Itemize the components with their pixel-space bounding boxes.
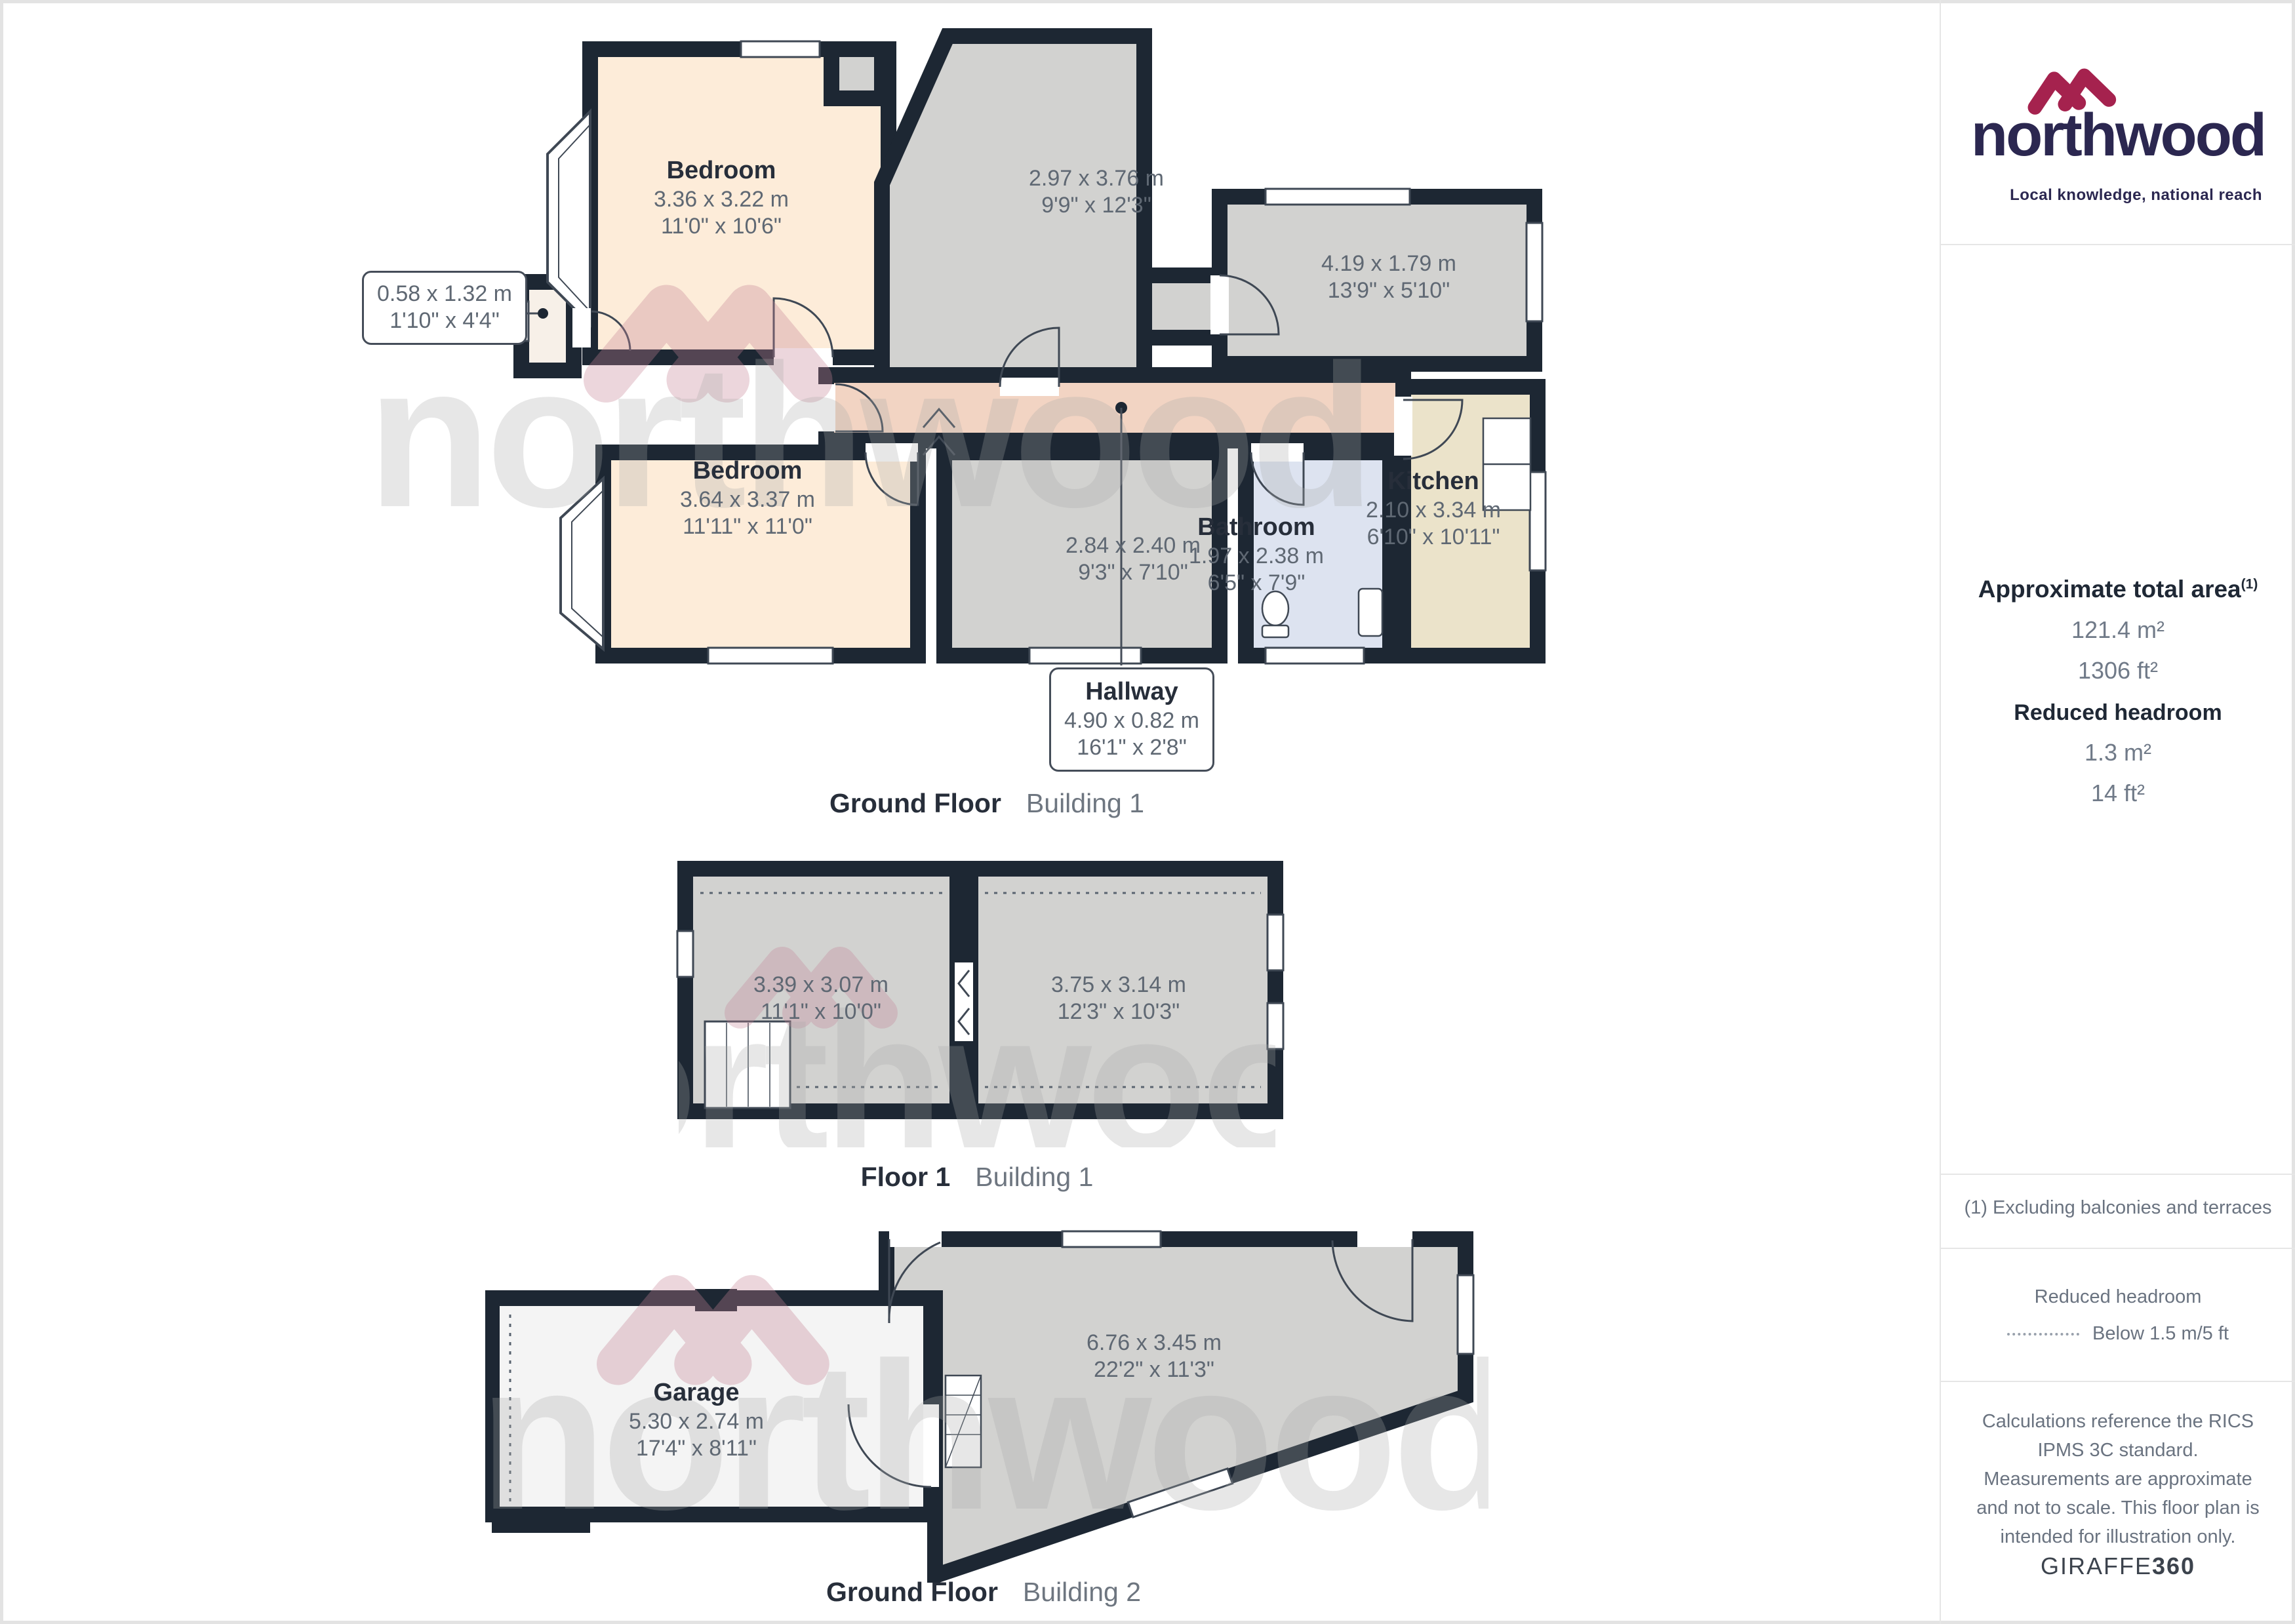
label-room375: 3.75 x 3.14 m 12'3" x 10'3" bbox=[1051, 972, 1186, 1026]
caption-floor: Ground Floor bbox=[826, 1577, 998, 1607]
bay-window-bedroom2 bbox=[561, 479, 603, 649]
wc-callout: 0.58 x 1.32 m 1'10" x 4'4" bbox=[362, 271, 527, 345]
total-area-title: Approximate total area(1) bbox=[1941, 576, 2295, 603]
window bbox=[708, 648, 833, 663]
total-area-metric: 121.4 m² bbox=[1941, 616, 2295, 644]
brand-tagline-wrap: Local knowledge, national reach bbox=[1967, 186, 2262, 205]
credit-normal: GIRAFFE bbox=[2041, 1553, 2152, 1579]
footnote-text: (1) Excluding balconies and terraces bbox=[1941, 1197, 2295, 1219]
legend-entry-text: Below 1.5 m/5 ft bbox=[2092, 1323, 2229, 1344]
ground-floor-building1-plan bbox=[511, 20, 1547, 665]
window bbox=[1266, 189, 1410, 205]
room-metric: 4.19 x 1.79 m bbox=[1321, 250, 1456, 277]
window bbox=[1530, 472, 1546, 570]
sink-icon bbox=[1359, 589, 1382, 636]
room-metric: 4.90 x 0.82 m bbox=[1064, 707, 1199, 734]
label-garage: Garage 5.30 x 2.74 m 17'4" x 8'11" bbox=[629, 1378, 764, 1463]
label-room339: 3.39 x 3.07 m 11'1" x 10'0" bbox=[753, 972, 888, 1026]
brand-logo: northwood bbox=[1941, 105, 2295, 165]
window bbox=[1267, 915, 1283, 970]
label-bathroom: Bathroom 1.97 x 2.38 m 6'5" x 7'9" bbox=[1189, 513, 1324, 597]
window bbox=[1029, 648, 1141, 663]
room-metric: 3.64 x 3.37 m bbox=[680, 486, 815, 513]
window bbox=[1267, 1003, 1283, 1049]
room-metric: 2.84 x 2.40 m bbox=[1066, 532, 1201, 559]
dotted-line-swatch bbox=[2007, 1333, 2079, 1336]
room-metric: 3.39 x 3.07 m bbox=[753, 972, 888, 999]
room-imperial: 9'3" x 7'10" bbox=[1066, 559, 1201, 586]
window bbox=[1062, 1231, 1161, 1247]
room-metric: 2.97 x 3.76 m bbox=[1029, 165, 1164, 192]
hallway-callout: Hallway 4.90 x 0.82 m 16'1" x 2'8" bbox=[1049, 667, 1214, 772]
room-imperial: 12'3" x 10'3" bbox=[1051, 999, 1186, 1025]
room-metric: 2.10 x 3.34 m bbox=[1366, 497, 1501, 524]
window bbox=[1458, 1275, 1473, 1354]
caption-ground-floor-b2: Ground FloorBuilding 2 bbox=[826, 1577, 1141, 1608]
legend-title: Reduced headroom bbox=[1941, 1286, 2295, 1308]
credit-bold: 360 bbox=[2152, 1553, 2195, 1579]
room-imperial: 6'5" x 7'9" bbox=[1189, 570, 1324, 597]
room-imperial: 11'11" x 11'0" bbox=[680, 513, 815, 540]
room-metric: 1.97 x 2.38 m bbox=[1189, 543, 1324, 570]
label-bedroom2: Bedroom 3.64 x 3.37 m 11'11" x 11'0" bbox=[680, 456, 815, 541]
wall-notch bbox=[695, 1289, 737, 1311]
label-room676: 6.76 x 3.45 m 22'2" x 11'3" bbox=[1087, 1330, 1222, 1384]
label-room419: 4.19 x 1.79 m 13'9" x 5'10" bbox=[1321, 250, 1456, 305]
reduced-headroom-imperial: 14 ft² bbox=[1941, 780, 2295, 807]
room-imperial: 11'1" x 10'0" bbox=[753, 999, 888, 1025]
label-kitchen: Kitchen 2.10 x 3.34 m 6'10" x 10'11" bbox=[1366, 467, 1501, 551]
reduced-headroom-metric: 1.3 m² bbox=[1941, 739, 2295, 766]
brand-name: northwood bbox=[1971, 102, 2265, 168]
giraffe360-credit: GIRAFFE360 bbox=[1941, 1553, 2295, 1580]
label-room297: 2.97 x 3.76 m 9'9" x 12'3" bbox=[1029, 165, 1164, 220]
room-imperial: 17'4" x 8'11" bbox=[629, 1435, 764, 1462]
total-area-imperial: 1306 ft² bbox=[1941, 657, 2295, 684]
label-room284: 2.84 x 2.40 m 9'3" x 7'10" bbox=[1066, 532, 1201, 587]
gf1-rooms bbox=[521, 36, 1538, 656]
legend-entry: Below 1.5 m/5 ft bbox=[1941, 1323, 2295, 1345]
room-imperial: 9'9" x 12'3" bbox=[1029, 192, 1164, 219]
sidebar-divider bbox=[1941, 1381, 2295, 1382]
room-imperial: 13'9" x 5'10" bbox=[1321, 277, 1456, 304]
reduced-headroom-title: Reduced headroom bbox=[1941, 700, 2295, 726]
room-connector bbox=[1144, 275, 1220, 338]
reduced-headroom-block: Reduced headroom 1.3 m² 14 ft² bbox=[1941, 700, 2295, 807]
room-imperial: 1'10" x 4'4" bbox=[377, 307, 512, 334]
room-metric: 3.36 x 3.22 m bbox=[654, 186, 789, 213]
caption-building: Building 1 bbox=[975, 1162, 1093, 1192]
double-door bbox=[1527, 223, 1542, 321]
caption-building: Building 2 bbox=[1023, 1577, 1141, 1607]
room-metric: 0.58 x 1.32 m bbox=[377, 281, 512, 307]
label-bedroom1: Bedroom 3.36 x 3.22 m 11'0" x 10'6" bbox=[654, 156, 789, 241]
brand-tagline: Local knowledge, national reach bbox=[2010, 186, 2262, 204]
chimney-recess bbox=[831, 49, 882, 98]
caption-floor: Ground Floor bbox=[829, 788, 1001, 818]
stairwell bbox=[705, 1021, 790, 1108]
room-imperial: 22'2" x 11'3" bbox=[1087, 1357, 1222, 1383]
room-metric: 3.75 x 3.14 m bbox=[1051, 972, 1186, 999]
room-name: Kitchen bbox=[1366, 467, 1501, 497]
window bbox=[1266, 648, 1364, 663]
stairs-ladder bbox=[946, 1376, 981, 1467]
room-imperial: 6'10" x 10'11" bbox=[1366, 524, 1501, 551]
sidebar-divider bbox=[1941, 244, 2295, 245]
window bbox=[741, 41, 820, 57]
room-metric: 6.76 x 3.45 m bbox=[1087, 1330, 1222, 1357]
sidebar-divider bbox=[1941, 1174, 2295, 1175]
room-hallway bbox=[826, 375, 1403, 441]
room-name: Garage bbox=[629, 1378, 764, 1408]
window bbox=[677, 931, 693, 977]
room-name: Hallway bbox=[1064, 677, 1199, 707]
toilet-cistern bbox=[1262, 625, 1288, 637]
room-imperial: 11'0" x 10'6" bbox=[654, 213, 789, 240]
disclaimer-text: Calculations reference the RICS IPMS 3C … bbox=[1974, 1407, 2262, 1551]
caption-ground-floor-b1: Ground FloorBuilding 1 bbox=[829, 788, 1144, 819]
caption-floor: Floor 1 bbox=[861, 1162, 951, 1192]
floorplan-page: northwood northwood northwood Bedroom 3.… bbox=[0, 0, 2295, 1624]
room-name: Bedroom bbox=[680, 456, 815, 486]
wc-dot bbox=[538, 308, 548, 319]
room-metric: 5.30 x 2.74 m bbox=[629, 1408, 764, 1435]
room-imperial: 16'1" x 2'8" bbox=[1064, 734, 1199, 761]
room-name: Bedroom bbox=[654, 156, 789, 186]
sidebar-divider bbox=[1941, 1248, 2295, 1249]
footnote-marker: (1) bbox=[2241, 577, 2258, 592]
caption-floor1-b1: Floor 1Building 1 bbox=[861, 1162, 1094, 1193]
room-name: Bathroom bbox=[1189, 513, 1324, 543]
wall-step bbox=[492, 1508, 590, 1533]
total-area-block: Approximate total area(1) 121.4 m² 1306 … bbox=[1941, 576, 2295, 684]
caption-building: Building 1 bbox=[1026, 788, 1144, 818]
